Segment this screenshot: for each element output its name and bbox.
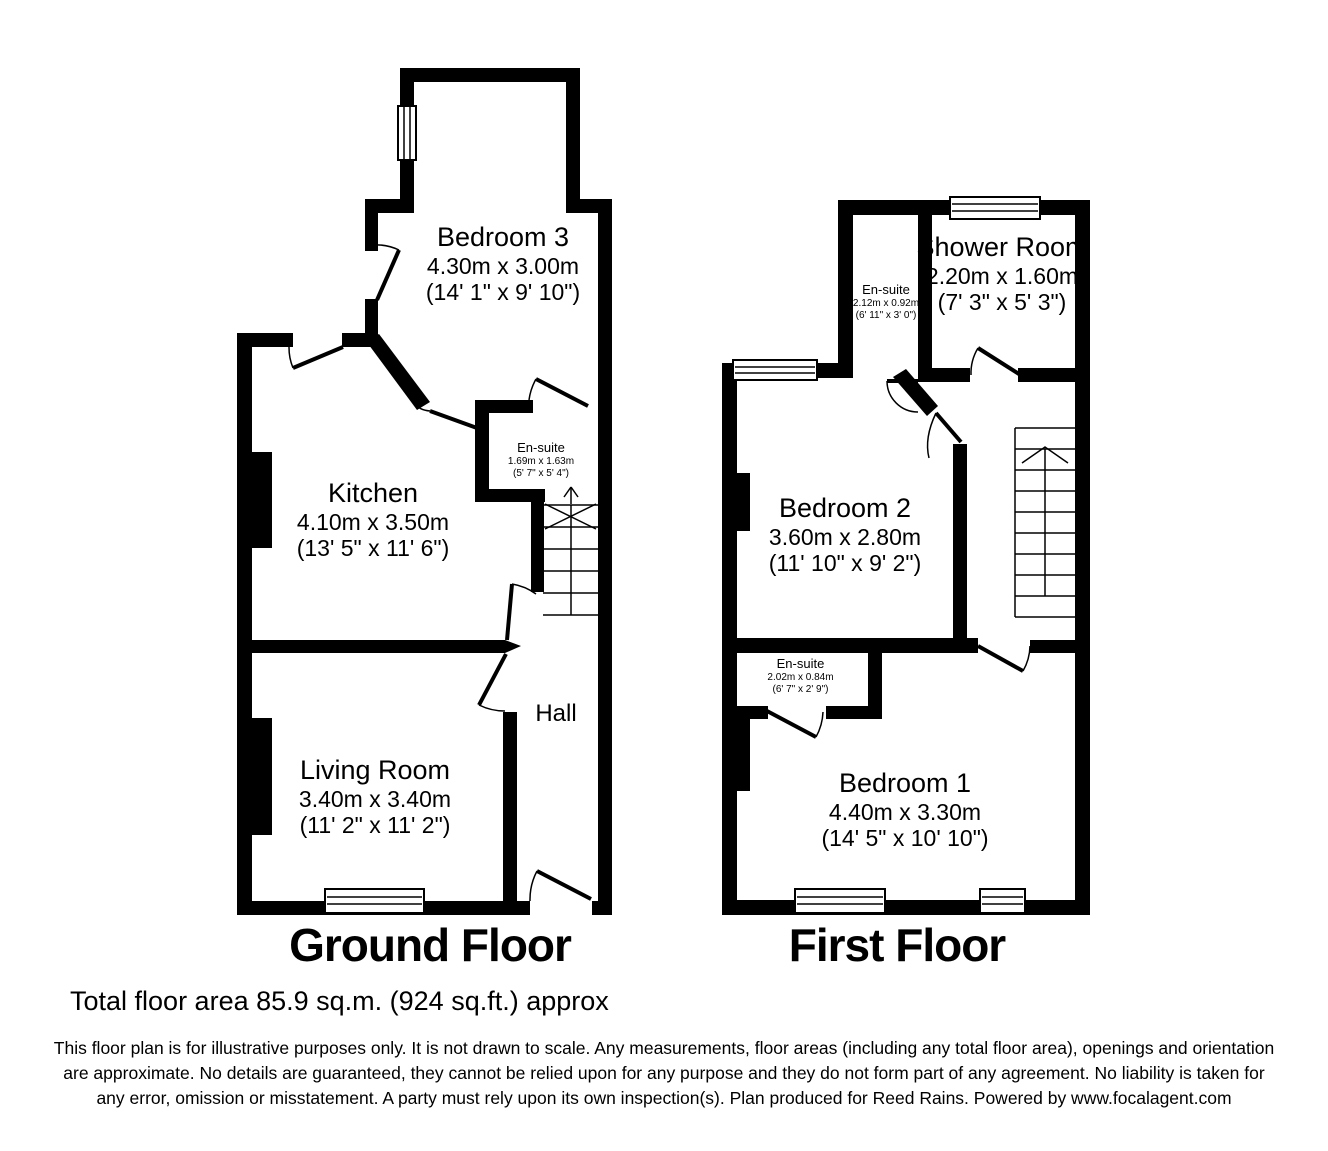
room-label-ensuite-ground: En-suite 1.69m x 1.63m (5' 7" x 5' 4") bbox=[476, 440, 606, 480]
door-icon bbox=[978, 646, 1030, 671]
room-name: En-suite bbox=[476, 440, 606, 456]
room-dim-metric: 3.60m x 2.80m bbox=[730, 524, 960, 550]
room-name: Bedroom 1 bbox=[785, 768, 1025, 799]
room-label-bedroom-3: Bedroom 3 4.30m x 3.00m (14' 1" x 9' 10"… bbox=[388, 222, 618, 305]
room-name: En-suite bbox=[733, 656, 868, 672]
room-name: Bedroom 2 bbox=[730, 493, 960, 524]
total-floor-area: Total floor area 85.9 sq.m. (924 sq.ft.)… bbox=[70, 986, 609, 1017]
room-dim-metric: 3.40m x 3.40m bbox=[255, 786, 495, 812]
room-dim-metric: 4.40m x 3.30m bbox=[785, 799, 1025, 825]
window-icon bbox=[325, 889, 424, 913]
room-name: Kitchen bbox=[258, 478, 488, 509]
door-icon bbox=[529, 379, 588, 406]
window-icon bbox=[795, 889, 885, 913]
room-dim-imperial: (11' 2" x 11' 2") bbox=[255, 812, 495, 838]
door-icon bbox=[530, 871, 591, 901]
window-icon bbox=[398, 106, 416, 160]
room-label-shower-room: Shower Room 2.20m x 1.60m (7' 3" x 5' 3"… bbox=[916, 232, 1088, 315]
ground-floor-title: Ground Floor bbox=[230, 918, 630, 972]
room-name: Bedroom 3 bbox=[388, 222, 618, 253]
window-icon bbox=[980, 889, 1025, 913]
room-label-ensuite-first-bottom: En-suite 2.02m x 0.84m (6' 7" x 2' 9") bbox=[733, 656, 868, 696]
room-dim-imperial: (13' 5" x 11' 6") bbox=[258, 535, 488, 561]
room-label-hall: Hall bbox=[506, 700, 606, 728]
room-dim-metric: 1.69m x 1.63m bbox=[476, 456, 606, 468]
room-dim-metric: 2.02m x 0.84m bbox=[733, 672, 868, 684]
door-icon bbox=[416, 404, 477, 428]
room-dim-imperial: (11' 10" x 9' 2") bbox=[730, 550, 960, 576]
room-dim-imperial: (14' 1" x 9' 10") bbox=[388, 279, 618, 305]
first-floor-title: First Floor bbox=[697, 918, 1097, 972]
door-icon bbox=[507, 584, 536, 640]
room-dim-imperial: (5' 7" x 5' 4") bbox=[476, 468, 606, 480]
room-dim-imperial: (14' 5" x 10' 10") bbox=[785, 825, 1025, 851]
door-icon bbox=[479, 654, 506, 711]
room-label-kitchen: Kitchen 4.10m x 3.50m (13' 5" x 11' 6") bbox=[258, 478, 488, 561]
stairs-icon bbox=[1015, 428, 1075, 617]
door-icon bbox=[767, 711, 823, 737]
window-icon bbox=[733, 360, 817, 380]
room-dim-imperial: (6' 7" x 2' 9") bbox=[733, 684, 868, 696]
room-dim-imperial: (7' 3" x 5' 3") bbox=[916, 289, 1088, 315]
disclaimer-text: This floor plan is for illustrative purp… bbox=[48, 1036, 1280, 1111]
floor-plan-drawing bbox=[0, 0, 1328, 1151]
door-icon bbox=[971, 348, 1019, 375]
window-icon bbox=[950, 197, 1040, 219]
stairs-icon bbox=[543, 487, 598, 615]
room-label-bedroom-2: Bedroom 2 3.60m x 2.80m (11' 10" x 9' 2"… bbox=[730, 493, 960, 576]
floor-plan-page: Bedroom 3 4.30m x 3.00m (14' 1" x 9' 10"… bbox=[0, 0, 1328, 1151]
room-label-living-room: Living Room 3.40m x 3.40m (11' 2" x 11' … bbox=[255, 755, 495, 838]
room-dim-metric: 4.30m x 3.00m bbox=[388, 253, 618, 279]
room-label-bedroom-1: Bedroom 1 4.40m x 3.30m (14' 5" x 10' 10… bbox=[785, 768, 1025, 851]
room-dim-metric: 2.20m x 1.60m bbox=[916, 263, 1088, 289]
room-dim-metric: 4.10m x 3.50m bbox=[258, 509, 488, 535]
room-name: Living Room bbox=[255, 755, 495, 786]
door-icon bbox=[289, 347, 343, 368]
room-name: Shower Room bbox=[916, 232, 1088, 263]
